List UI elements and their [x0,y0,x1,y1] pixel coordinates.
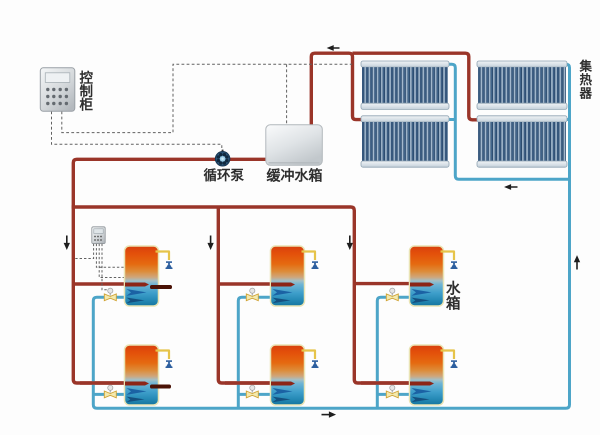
svg-text:箱: 箱 [446,295,461,313]
svg-text:集: 集 [579,59,593,74]
svg-text:器: 器 [579,87,593,101]
svg-text:水: 水 [446,280,461,298]
svg-text:缓冲水箱: 缓冲水箱 [267,168,323,184]
svg-text:热: 热 [580,72,593,87]
svg-text:柜: 柜 [80,97,94,113]
svg-text:循环泵: 循环泵 [204,167,245,183]
